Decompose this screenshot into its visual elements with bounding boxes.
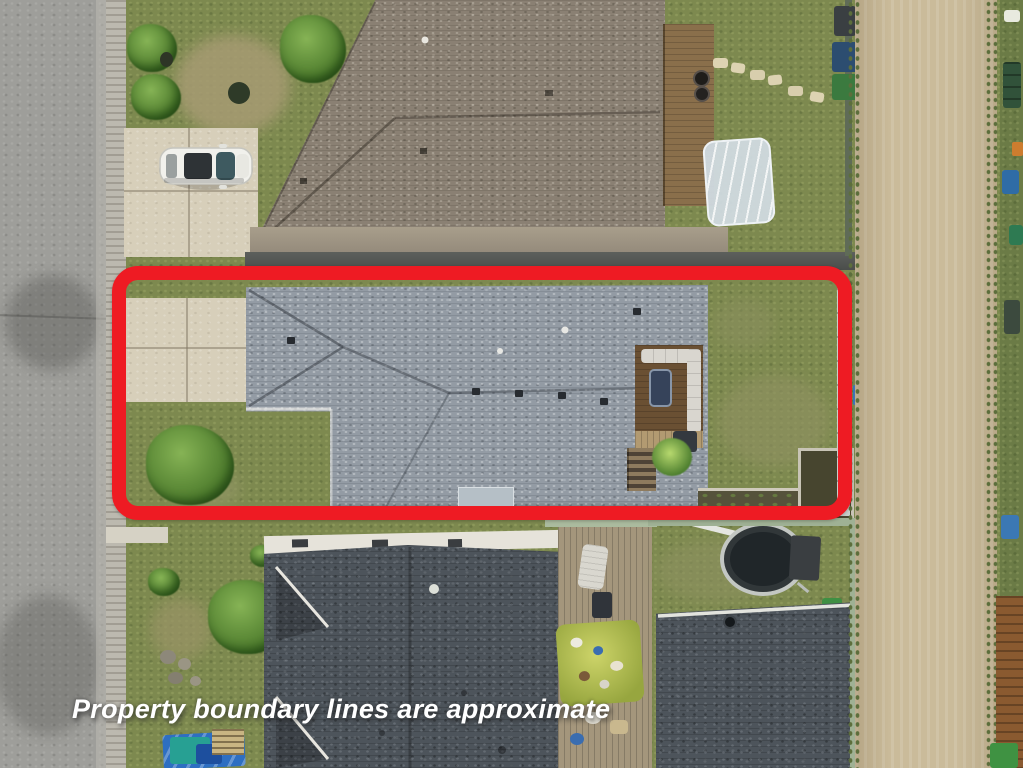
rock (190, 676, 201, 686)
planter-pot (160, 52, 173, 67)
shrub (148, 568, 180, 596)
garage-roof (656, 602, 858, 768)
shrub (131, 74, 181, 120)
wood-pallet (212, 729, 244, 755)
clutter-item (610, 720, 628, 734)
clutter-item (579, 671, 591, 682)
tree (280, 15, 346, 83)
solarium-greenhouse (702, 137, 776, 228)
dark-bin (1004, 300, 1020, 334)
street-gutter (96, 0, 106, 768)
street-stain (5, 275, 100, 370)
fire-ring (694, 86, 710, 102)
clutter-item (570, 733, 584, 745)
fire-ring (693, 70, 710, 87)
rock (178, 658, 191, 670)
stepping-stone (788, 86, 803, 96)
aerial-property-photo: Property boundary lines are approximate (0, 0, 1023, 768)
blue-bin (1002, 170, 1019, 194)
gravel-alley (855, 0, 997, 768)
caption-text: Property boundary lines are approximate (72, 694, 610, 725)
roof-vent (292, 539, 308, 547)
white-suv (156, 138, 256, 196)
stepping-stone (768, 74, 783, 85)
roof-valley-lines (264, 545, 558, 768)
roof-vent (448, 539, 462, 547)
front-walkway (106, 527, 168, 543)
green-bin (1009, 225, 1023, 245)
clutter-item (570, 637, 583, 648)
dirt-patch (150, 598, 212, 660)
garage-roof-edge (656, 602, 858, 768)
clutter-item (593, 646, 604, 656)
stepping-stone (730, 62, 745, 74)
grill (592, 592, 612, 618)
rock (160, 650, 176, 664)
blue-bin (1001, 515, 1019, 539)
stepping-stone (713, 58, 728, 68)
rock (168, 672, 183, 684)
dark-mat (789, 535, 821, 581)
roof-bottom-neighbor (264, 545, 558, 768)
green-bins (1003, 62, 1021, 108)
clutter-item (610, 660, 624, 671)
roof-eave-strip (250, 227, 728, 255)
orange-item (1012, 142, 1023, 156)
green-bin (990, 743, 1018, 768)
property-boundary-outline (112, 266, 852, 520)
planter-pot (228, 82, 250, 104)
fence-line (545, 520, 657, 527)
white-item (1004, 10, 1020, 22)
stepping-stone (750, 70, 765, 80)
clutter-item (599, 679, 610, 689)
